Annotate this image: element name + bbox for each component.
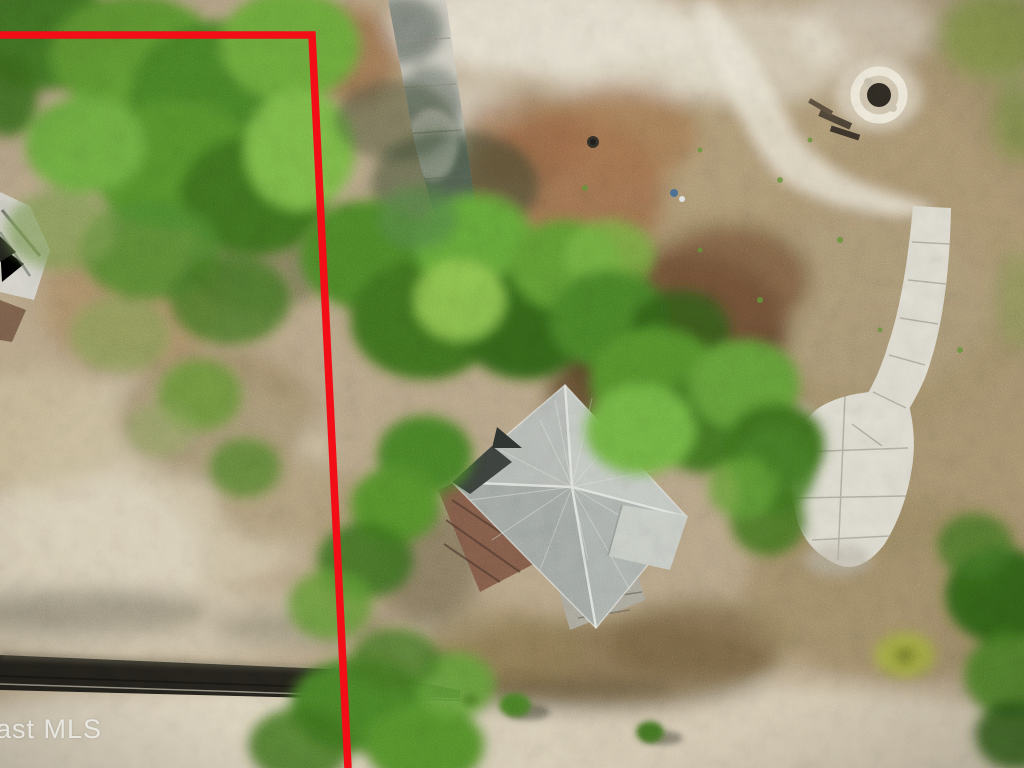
photo-canvas xyxy=(0,0,1024,768)
vignette xyxy=(0,0,1024,768)
mls-watermark: ast MLS xyxy=(0,714,102,745)
aerial-property-photo: ast MLS xyxy=(0,0,1024,768)
